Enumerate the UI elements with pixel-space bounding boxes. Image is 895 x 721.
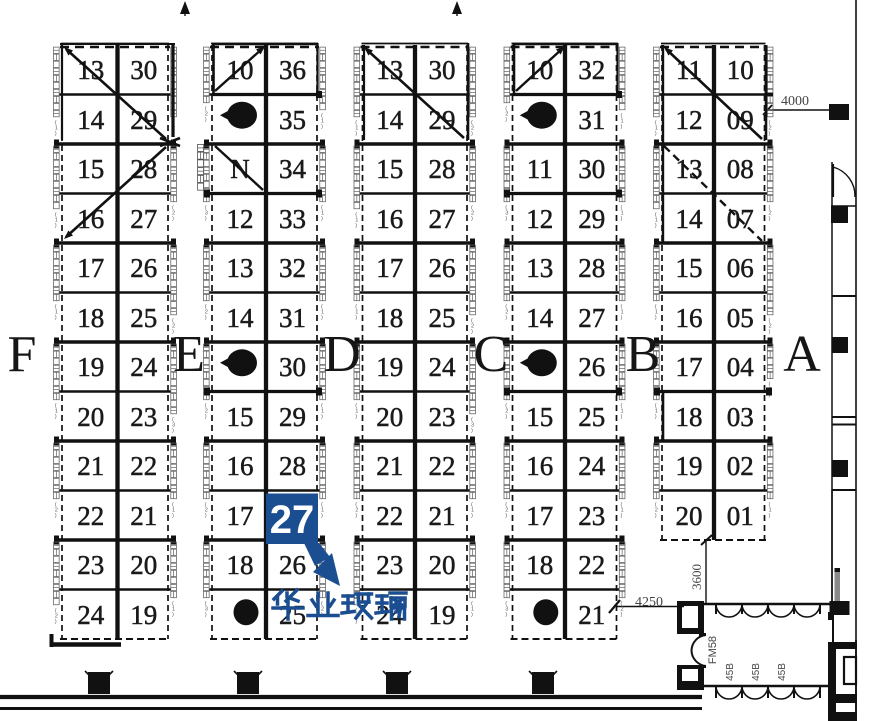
svg-text:F: F — [8, 326, 37, 383]
svg-text:19: 19 — [429, 600, 456, 630]
svg-text:): ) — [471, 428, 473, 434]
svg-text:): ) — [655, 414, 657, 420]
svg-text:): ) — [355, 223, 357, 229]
svg-text:26: 26 — [279, 550, 306, 580]
svg-text:02: 02 — [727, 451, 754, 481]
svg-text:05: 05 — [727, 303, 754, 333]
svg-text:14: 14 — [676, 204, 704, 234]
svg-text:20: 20 — [676, 501, 703, 531]
svg-text:28: 28 — [279, 451, 306, 481]
svg-text:4250: 4250 — [635, 595, 663, 610]
svg-text:): ) — [172, 513, 174, 519]
svg-text:): ) — [321, 216, 323, 222]
svg-text:17: 17 — [227, 501, 254, 531]
svg-text:): ) — [55, 414, 57, 420]
svg-text:30: 30 — [578, 154, 605, 184]
svg-text:E: E — [173, 326, 205, 383]
svg-text:16: 16 — [376, 204, 403, 234]
svg-text:14: 14 — [77, 105, 105, 135]
svg-text:34: 34 — [279, 154, 307, 184]
svg-text:25: 25 — [279, 600, 306, 630]
svg-text:): ) — [471, 612, 473, 618]
svg-text:19: 19 — [376, 352, 403, 382]
svg-text:): ) — [621, 216, 623, 222]
svg-text:22: 22 — [376, 501, 403, 531]
svg-text:21: 21 — [77, 451, 104, 481]
svg-text:): ) — [655, 131, 657, 137]
svg-text:19: 19 — [130, 600, 157, 630]
svg-text:4000: 4000 — [781, 94, 809, 109]
svg-text:): ) — [55, 513, 57, 519]
svg-text:18: 18 — [526, 550, 553, 580]
svg-text:30: 30 — [279, 352, 306, 382]
svg-text:23: 23 — [578, 501, 605, 531]
svg-text:22: 22 — [77, 501, 104, 531]
svg-text:23: 23 — [77, 550, 104, 580]
svg-text:30: 30 — [130, 55, 157, 85]
svg-text:15: 15 — [376, 154, 403, 184]
svg-text:17: 17 — [526, 501, 553, 531]
svg-text:): ) — [471, 513, 473, 519]
svg-text:26: 26 — [578, 352, 605, 382]
svg-text:31: 31 — [578, 105, 605, 135]
svg-text:35: 35 — [279, 105, 306, 135]
svg-text:): ) — [769, 329, 771, 335]
svg-text:13: 13 — [227, 253, 254, 283]
svg-text:): ) — [655, 513, 657, 519]
svg-text:27: 27 — [130, 204, 157, 234]
svg-text:24: 24 — [77, 600, 105, 630]
svg-text:23: 23 — [376, 550, 403, 580]
svg-text:11: 11 — [527, 154, 553, 184]
svg-text:25: 25 — [429, 303, 456, 333]
svg-text:08: 08 — [727, 154, 754, 184]
svg-text:): ) — [55, 131, 57, 137]
svg-text:28: 28 — [578, 253, 605, 283]
svg-text:03: 03 — [727, 402, 754, 432]
svg-text:27: 27 — [429, 204, 456, 234]
svg-text:10: 10 — [727, 55, 754, 85]
svg-text:18: 18 — [376, 303, 403, 333]
svg-text:): ) — [205, 513, 207, 519]
svg-text:): ) — [172, 612, 174, 618]
svg-text:15: 15 — [676, 253, 703, 283]
svg-text:26: 26 — [130, 253, 157, 283]
svg-text:31: 31 — [279, 303, 306, 333]
svg-text:19: 19 — [676, 451, 703, 481]
svg-text:): ) — [505, 612, 507, 618]
svg-text:): ) — [355, 414, 357, 420]
svg-text:): ) — [205, 315, 207, 321]
svg-text:12: 12 — [676, 105, 703, 135]
svg-text:): ) — [655, 223, 657, 229]
svg-text:): ) — [621, 315, 623, 321]
svg-text:): ) — [769, 131, 771, 137]
svg-text:): ) — [321, 315, 323, 321]
svg-text:): ) — [205, 216, 207, 222]
svg-text:18: 18 — [77, 303, 104, 333]
svg-text:): ) — [621, 414, 623, 420]
svg-text:15: 15 — [526, 402, 553, 432]
svg-text:): ) — [321, 414, 323, 420]
svg-text:30: 30 — [429, 55, 456, 85]
svg-text:25: 25 — [130, 303, 157, 333]
svg-text:): ) — [505, 216, 507, 222]
svg-text:14: 14 — [526, 303, 554, 333]
svg-text:22: 22 — [130, 451, 157, 481]
svg-text:17: 17 — [376, 253, 403, 283]
svg-text:FM58: FM58 — [707, 636, 719, 664]
svg-text:33: 33 — [279, 204, 306, 234]
svg-text:23: 23 — [429, 402, 456, 432]
svg-text:): ) — [621, 513, 623, 519]
svg-text:): ) — [769, 216, 771, 222]
svg-text:26: 26 — [429, 253, 456, 283]
svg-text:): ) — [355, 315, 357, 321]
svg-text:): ) — [55, 619, 57, 625]
svg-text:45B: 45B — [751, 663, 762, 681]
svg-text:): ) — [621, 124, 623, 130]
svg-text:): ) — [205, 117, 207, 123]
svg-text:A: A — [783, 326, 821, 383]
svg-text:): ) — [655, 315, 657, 321]
svg-text:06: 06 — [727, 253, 754, 283]
svg-text:16: 16 — [676, 303, 703, 333]
svg-text:15: 15 — [77, 154, 104, 184]
svg-text:13: 13 — [676, 154, 703, 184]
svg-text:): ) — [505, 414, 507, 420]
svg-text:): ) — [321, 513, 323, 519]
svg-text:24: 24 — [429, 352, 457, 382]
svg-text:21: 21 — [130, 501, 157, 531]
svg-text:14: 14 — [227, 303, 255, 333]
svg-text:18: 18 — [676, 402, 703, 432]
svg-text:17: 17 — [77, 253, 104, 283]
svg-text:29: 29 — [279, 402, 306, 432]
svg-text:12: 12 — [227, 204, 254, 234]
svg-text:27: 27 — [270, 498, 315, 542]
svg-text:20: 20 — [376, 402, 403, 432]
svg-text:16: 16 — [227, 451, 254, 481]
svg-text:): ) — [55, 315, 57, 321]
svg-text:): ) — [471, 131, 473, 137]
svg-text:24: 24 — [578, 451, 606, 481]
svg-text:21: 21 — [376, 451, 403, 481]
svg-text:): ) — [355, 131, 357, 137]
svg-text:B: B — [626, 326, 661, 383]
svg-text:01: 01 — [727, 501, 754, 531]
svg-text:12: 12 — [526, 204, 553, 234]
svg-text:32: 32 — [578, 55, 605, 85]
svg-text:): ) — [505, 315, 507, 321]
svg-text:23: 23 — [130, 402, 157, 432]
svg-text:18: 18 — [227, 550, 254, 580]
svg-text:16: 16 — [77, 204, 104, 234]
svg-text:25: 25 — [578, 402, 605, 432]
svg-text:29: 29 — [578, 204, 605, 234]
svg-text:24: 24 — [130, 352, 158, 382]
svg-text:22: 22 — [429, 451, 456, 481]
svg-text:32: 32 — [279, 253, 306, 283]
svg-text:3600: 3600 — [689, 564, 704, 590]
svg-text:14: 14 — [376, 105, 404, 135]
svg-text:): ) — [172, 428, 174, 434]
svg-text:C: C — [474, 326, 509, 383]
svg-text:27: 27 — [578, 303, 605, 333]
svg-text:45B: 45B — [777, 663, 788, 681]
svg-text:16: 16 — [526, 451, 553, 481]
svg-text:45B: 45B — [725, 663, 736, 681]
svg-text:15: 15 — [227, 402, 254, 432]
svg-text:): ) — [355, 513, 357, 519]
svg-text:20: 20 — [77, 402, 104, 432]
svg-text:28: 28 — [429, 154, 456, 184]
svg-text:04: 04 — [727, 352, 755, 382]
svg-text:D: D — [323, 326, 361, 383]
svg-text:): ) — [55, 223, 57, 229]
svg-text:): ) — [505, 513, 507, 519]
svg-text:19: 19 — [77, 352, 104, 382]
svg-text:): ) — [205, 612, 207, 618]
svg-text:): ) — [471, 216, 473, 222]
svg-text:17: 17 — [676, 352, 703, 382]
svg-text:): ) — [621, 612, 623, 618]
svg-text:13: 13 — [526, 253, 553, 283]
svg-text:21: 21 — [429, 501, 456, 531]
svg-text:20: 20 — [429, 550, 456, 580]
svg-text:): ) — [205, 414, 207, 420]
svg-text:): ) — [769, 513, 771, 519]
svg-text:20: 20 — [130, 550, 157, 580]
svg-text:22: 22 — [578, 550, 605, 580]
svg-text:): ) — [505, 117, 507, 123]
svg-text:): ) — [172, 216, 174, 222]
svg-text:21: 21 — [578, 600, 605, 630]
svg-text:): ) — [321, 124, 323, 130]
svg-text:36: 36 — [279, 55, 306, 85]
